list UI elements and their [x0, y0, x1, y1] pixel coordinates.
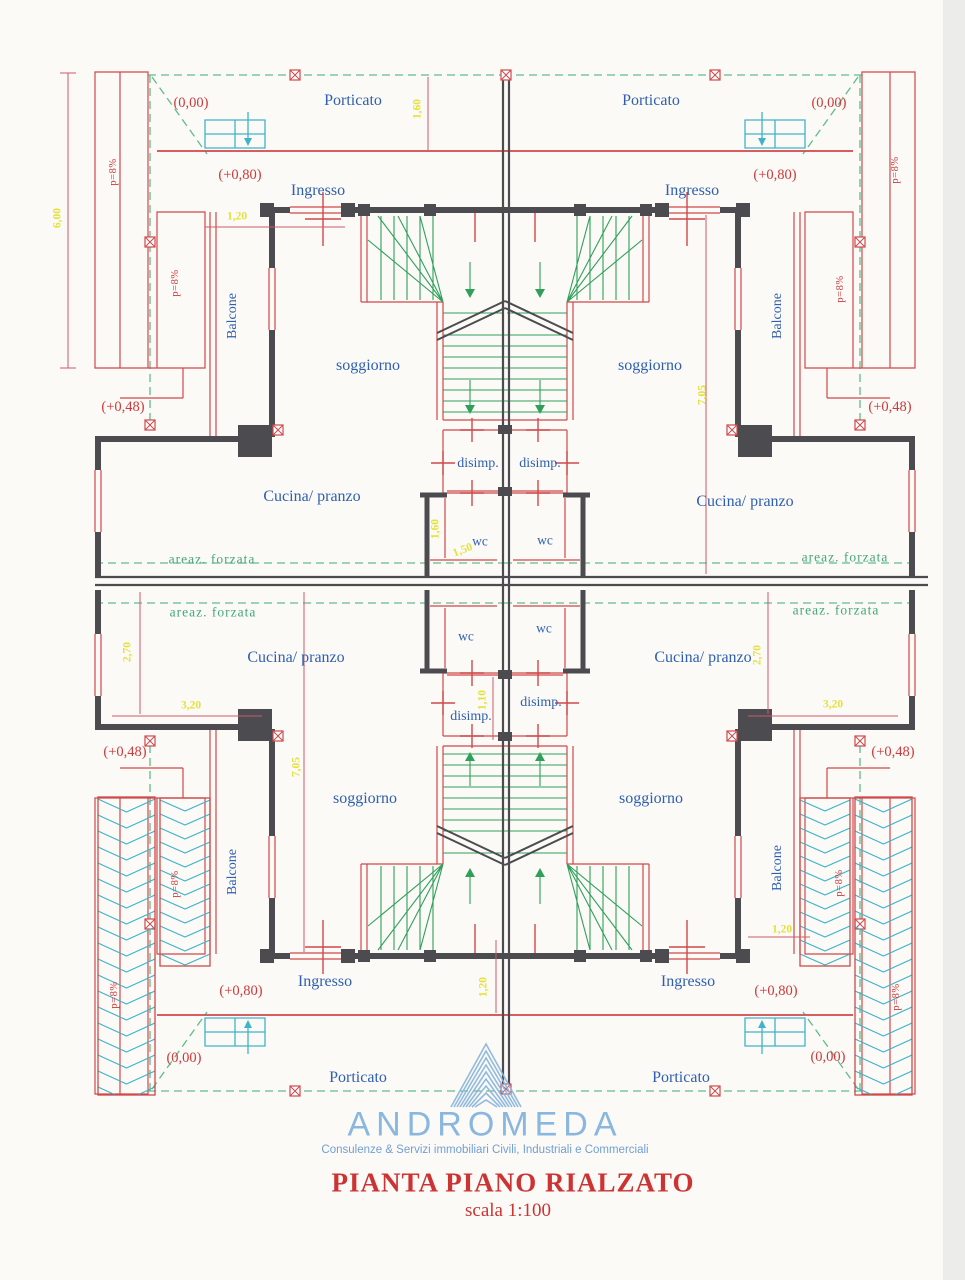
plan-title: PIANTA PIANO RIALZATO [331, 1168, 694, 1199]
slope-label-4: p=8% [891, 156, 902, 183]
level-label-ground-tl: (0,00) [173, 96, 208, 111]
scan-edge-shadow [943, 0, 965, 1280]
room-label-wc-br: wc [536, 621, 552, 635]
floorplan-drawing [0, 0, 965, 1280]
room-label-porticato-tr: Porticato [622, 93, 680, 109]
areaz-label-bl: areaz. forzata [170, 605, 257, 619]
level-label-entry-tl: (+0,80) [218, 168, 261, 183]
room-label-ingresso-tr: Ingresso [665, 183, 719, 199]
dim-label-110: 1,10 [477, 690, 489, 710]
level-label-entry-bl: (+0,80) [219, 984, 262, 999]
slope-label-2: p=8% [171, 269, 182, 296]
room-label-cucina-br: Cucina/ pranzo [654, 650, 751, 666]
room-label-soggiorno-bl: soggiorno [333, 791, 397, 807]
dim-label-600: 6,00 [52, 208, 64, 228]
room-label-balcone-bl: Balcone [226, 849, 240, 895]
room-label-soggiorno-tr: soggiorno [618, 358, 682, 374]
dim-label-120-tl: 1,20 [227, 211, 247, 223]
andromeda-logo-name: ANDROMEDA [347, 1106, 622, 1145]
room-label-soggiorno-br: soggiorno [619, 791, 683, 807]
dim-label-120-bc: 1,20 [478, 977, 490, 997]
room-label-ingresso-bl: Ingresso [298, 974, 352, 990]
dim-label-705-bl: 7,05 [291, 757, 303, 777]
room-label-ingresso-tl: Ingresso [291, 183, 345, 199]
slope-label-7: p=8% [835, 869, 846, 896]
areaz-label-tl: areaz. forzata [169, 552, 256, 566]
andromeda-logo-icon [451, 1044, 521, 1107]
dim-label-160-wc: 1,60 [430, 519, 442, 539]
dim-label-120-br: 1,20 [772, 924, 792, 936]
room-label-soggiorno-tl: soggiorno [336, 358, 400, 374]
andromeda-logo-tagline: Consulenze & Servizi immobiliari Civili,… [321, 1144, 648, 1156]
level-label-ground-bl: (0,00) [166, 1051, 201, 1066]
room-label-balcone-br: Balcone [771, 845, 785, 891]
room-label-balcone-tr: Balcone [771, 293, 785, 339]
level-label-entry-br: (+0,80) [754, 984, 797, 999]
level-label-terrace-br: (+0,48) [871, 745, 914, 760]
room-label-porticato-br: Porticato [652, 1070, 710, 1086]
dim-label-160-top: 1,60 [412, 99, 424, 119]
room-label-disimp-br: disimp. [520, 696, 562, 710]
room-label-balcone-tl: Balcone [226, 293, 240, 339]
level-label-entry-tr: (+0,80) [753, 168, 796, 183]
dim-label-705-tr: 7,05 [697, 385, 709, 405]
room-label-porticato-tl: Porticato [324, 93, 382, 109]
room-label-ingresso-br: Ingresso [661, 974, 715, 990]
room-label-cucina-tl: Cucina/ pranzo [263, 489, 360, 505]
dim-label-320-br: 3,20 [823, 699, 843, 711]
level-label-terrace-tr: (+0,48) [868, 400, 911, 415]
room-label-wc-tl: wc [472, 534, 488, 548]
plan-scale: scala 1:100 [465, 1200, 551, 1222]
dim-label-270-br: 2,70 [752, 645, 764, 665]
floorplan-page: Porticato Porticato Porticato Porticato … [0, 0, 965, 1280]
dim-label-270-bl: 2,70 [122, 642, 134, 662]
areaz-label-tr: areaz. forzata [802, 550, 889, 564]
room-label-disimp-tl: disimp. [457, 457, 499, 471]
slope-label-1: p=8% [109, 158, 120, 185]
level-label-terrace-bl: (+0,48) [103, 745, 146, 760]
level-label-ground-tr: (0,00) [811, 96, 846, 111]
dim-label-320-bl: 3,20 [181, 700, 201, 712]
areaz-label-br: areaz. forzata [793, 603, 880, 617]
room-label-porticato-bl: Porticato [329, 1070, 387, 1086]
room-label-cucina-tr: Cucina/ pranzo [696, 494, 793, 510]
room-label-disimp-tr: disimp. [519, 457, 561, 471]
room-label-wc-bl: wc [458, 629, 474, 643]
room-label-wc-tr: wc [537, 533, 553, 547]
slope-label-3: p=8% [836, 275, 847, 302]
room-label-disimp-bl: disimp. [450, 710, 492, 724]
room-label-cucina-bl: Cucina/ pranzo [247, 650, 344, 666]
level-label-ground-br: (0,00) [810, 1050, 845, 1065]
slope-label-8: p=8% [892, 983, 903, 1010]
slope-label-6: p=8% [171, 870, 182, 897]
level-label-terrace-tl: (+0,48) [101, 400, 144, 415]
slope-label-5: p=8% [110, 981, 121, 1008]
